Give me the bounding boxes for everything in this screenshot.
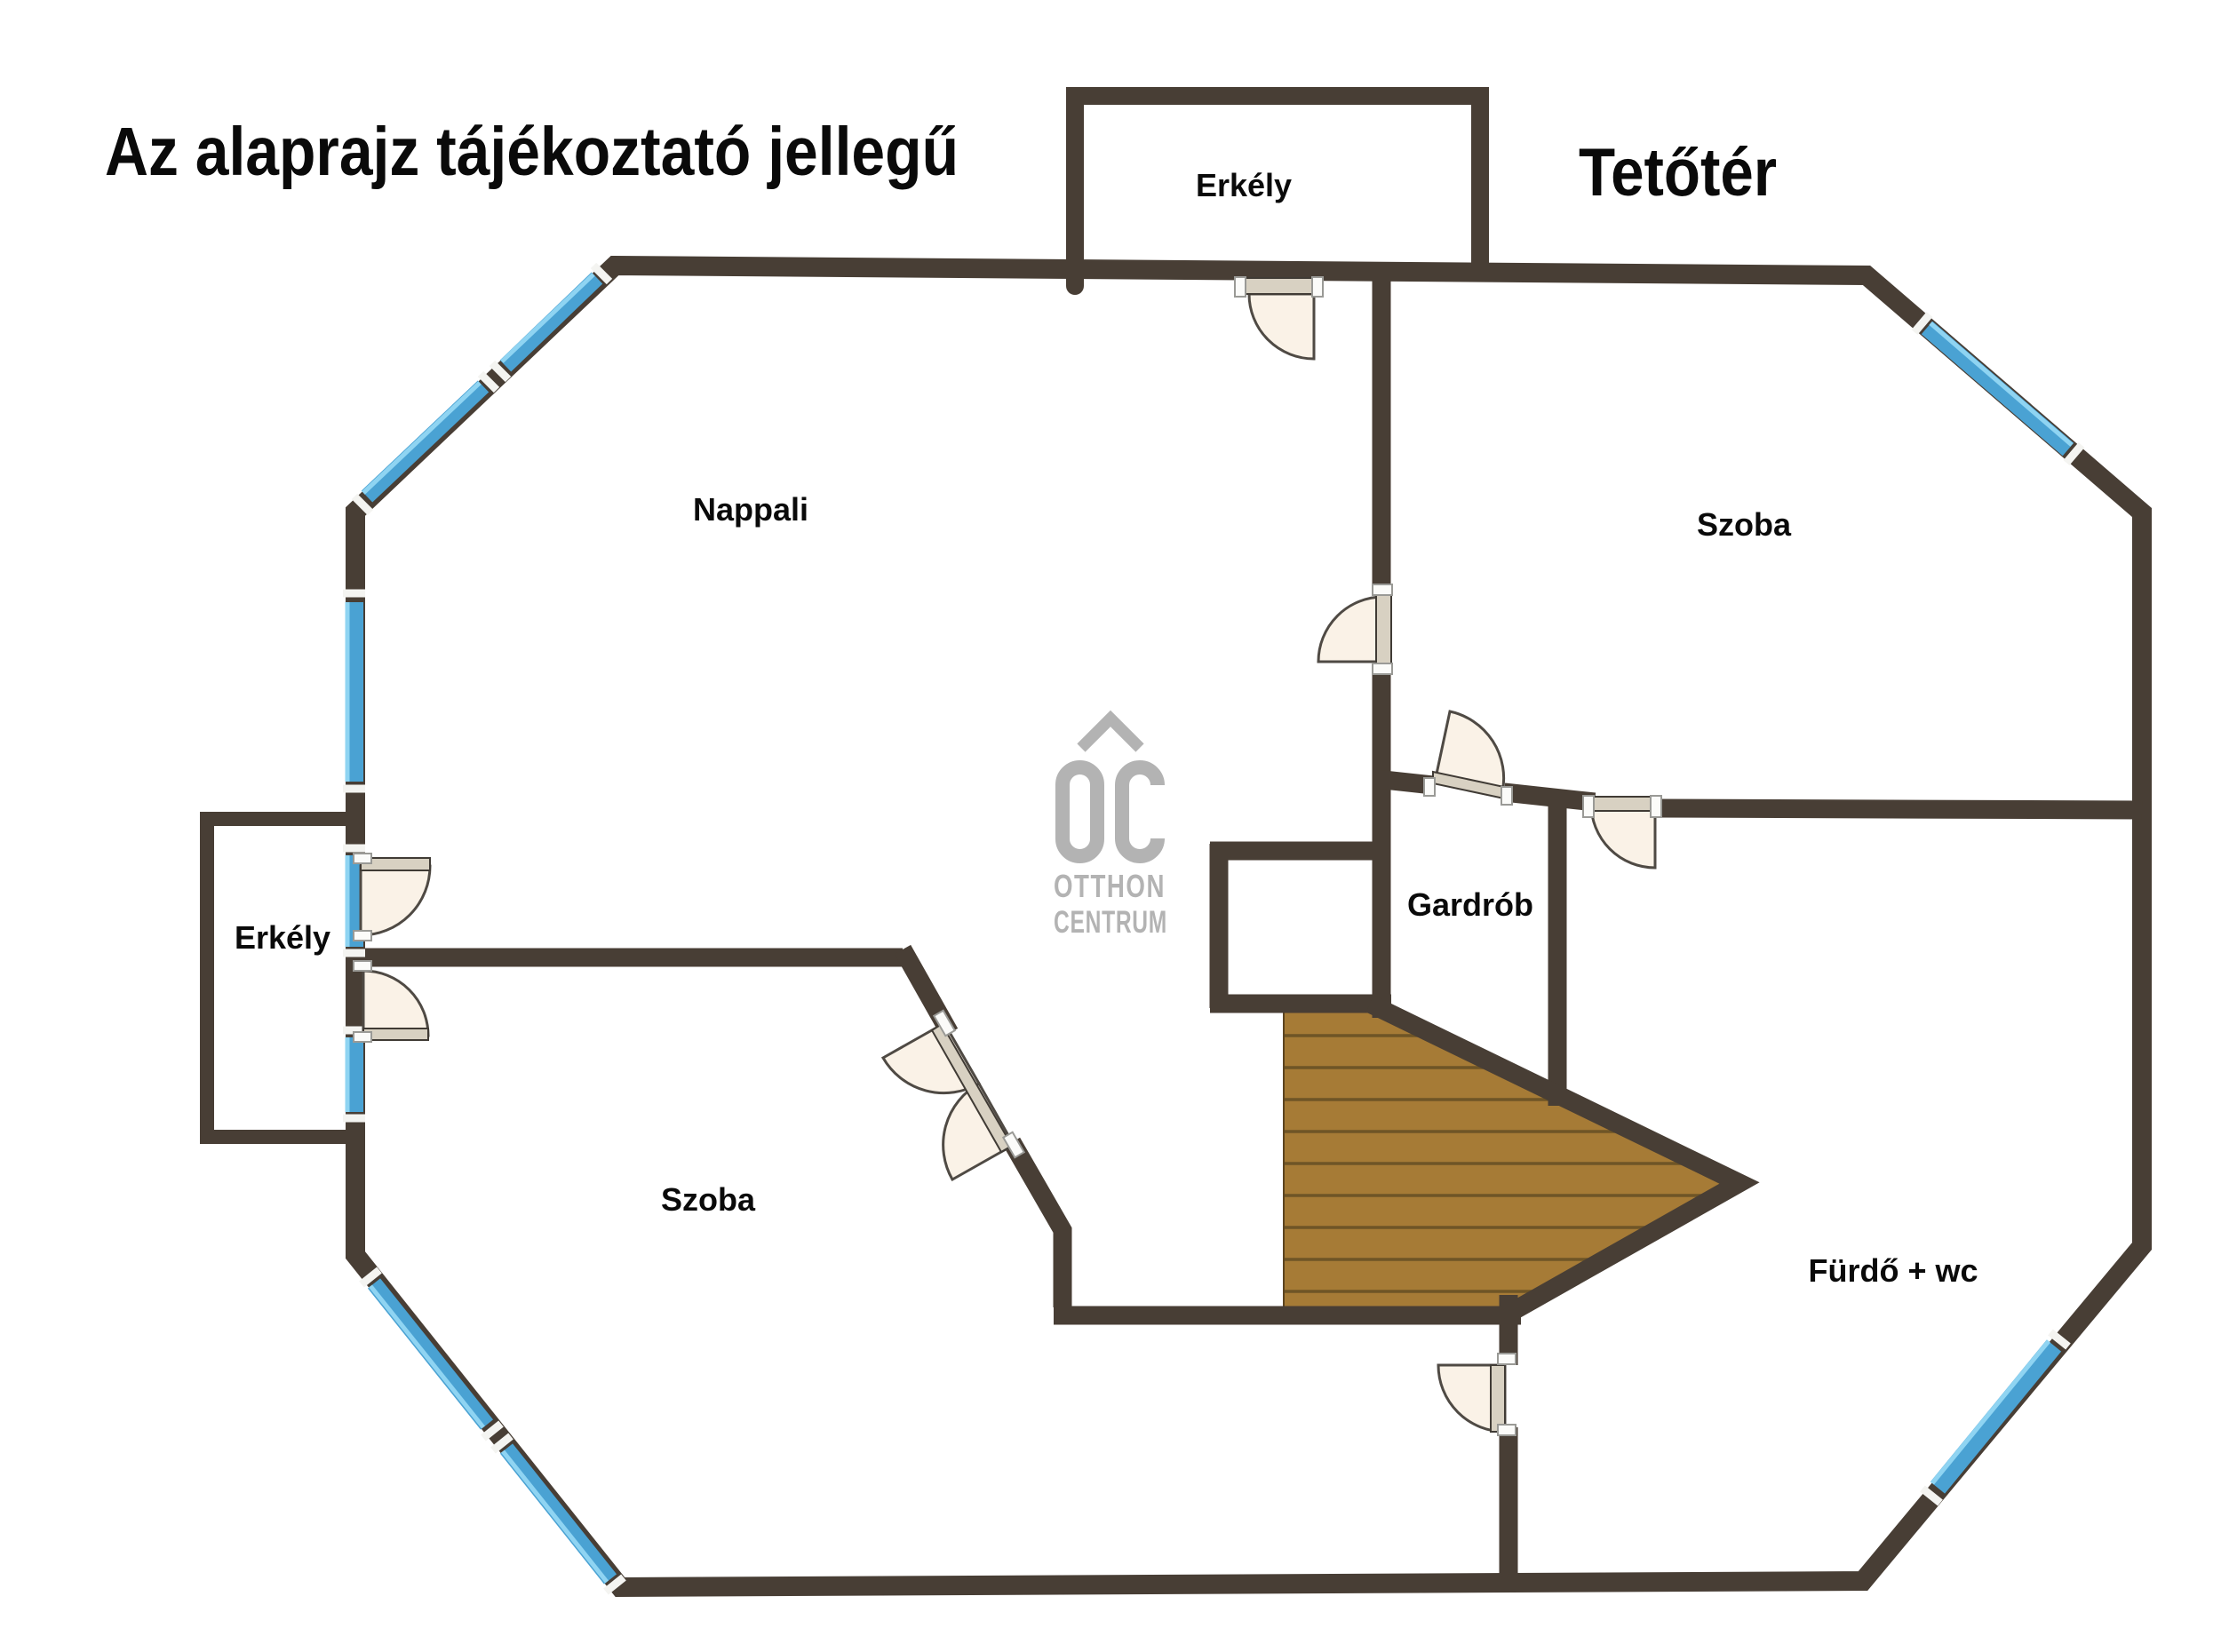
svg-text:Gardrób: Gardrób	[1407, 886, 1533, 923]
svg-text:CENTRUM: CENTRUM	[1054, 905, 1167, 940]
svg-text:OTTHON: OTTHON	[1054, 868, 1166, 904]
svg-text:Erkély: Erkély	[1196, 167, 1292, 203]
svg-text:Az alaprajz tájékoztató jelleg: Az alaprajz tájékoztató jellegű	[105, 114, 959, 190]
svg-text:Fürdő + wc: Fürdő + wc	[1808, 1252, 1978, 1289]
svg-text:Szoba: Szoba	[661, 1181, 756, 1218]
svg-text:Szoba: Szoba	[1697, 506, 1792, 543]
svg-text:Nappali: Nappali	[693, 491, 808, 528]
svg-text:Erkély: Erkély	[235, 919, 330, 956]
svg-text:Tetőtér: Tetőtér	[1579, 135, 1777, 210]
